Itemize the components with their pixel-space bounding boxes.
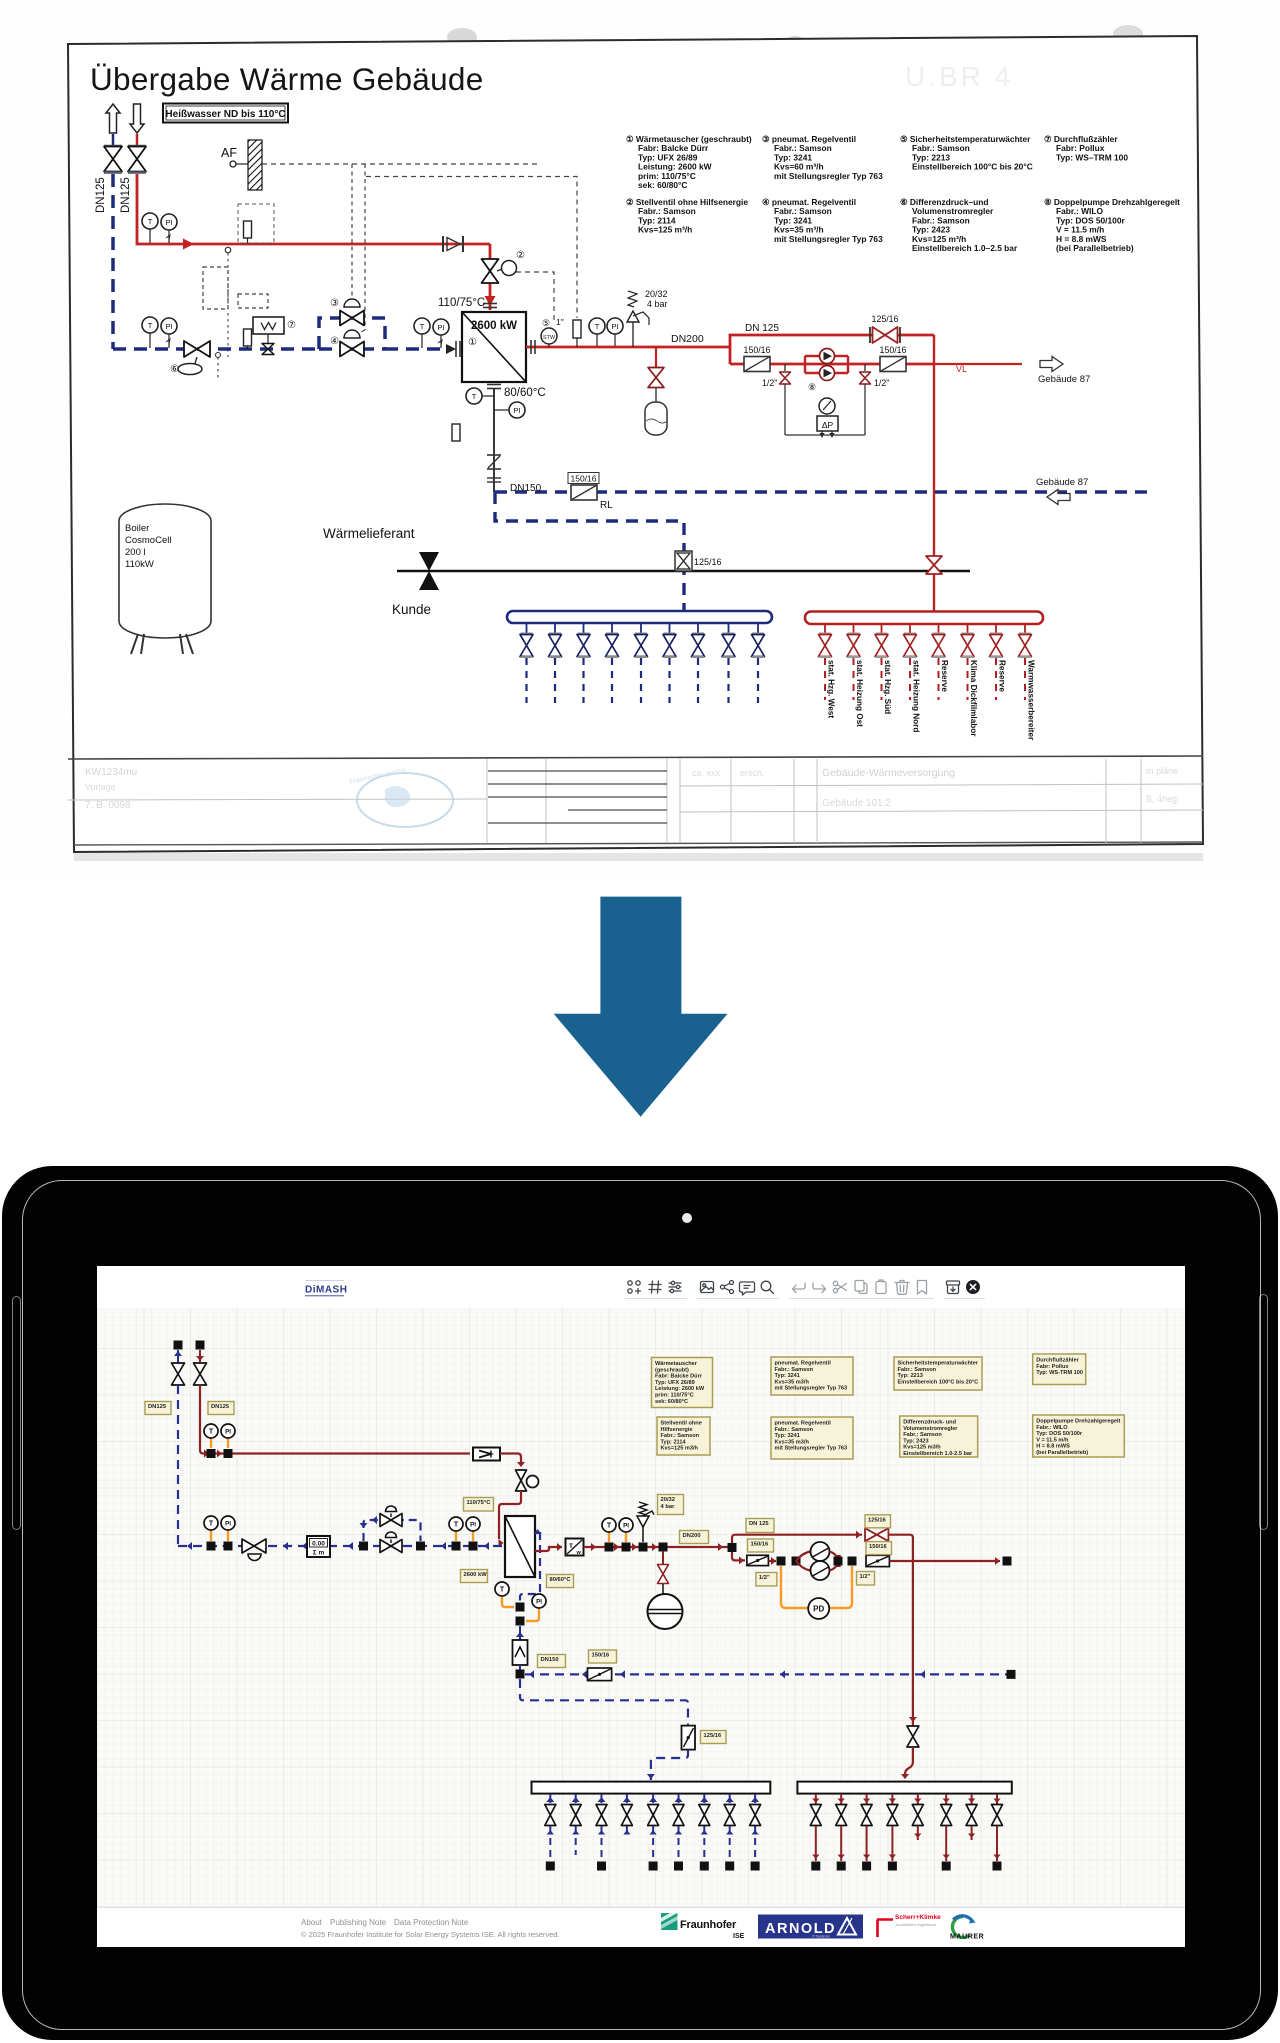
svg-text:DN 125: DN 125 [745, 323, 779, 334]
svg-text:mit Stellungsregler Typ 763: mit Stellungsregler Typ 763 [774, 234, 883, 244]
svg-text:1/2": 1/2" [874, 378, 889, 388]
svg-text:Heißwasser ND bis 110°C: Heißwasser ND bis 110°C [165, 109, 285, 120]
svg-text:Fabr.: Samson: Fabr.: Samson [775, 1427, 814, 1433]
svg-text:Gebäude-Wärmeversorgung: Gebäude-Wärmeversorgung [822, 767, 955, 779]
svg-text:125/16: 125/16 [694, 557, 722, 567]
svg-text:ISE: ISE [733, 1933, 745, 1940]
svg-text:Kvs=125 m³/h: Kvs=125 m³/h [638, 225, 692, 235]
svg-text:Reserve: Reserve [940, 660, 949, 692]
svg-text:AF: AF [221, 146, 237, 160]
svg-text:Publishing Note: Publishing Note [330, 1918, 387, 1927]
svg-text:7. B. 0098: 7. B. 0098 [85, 800, 131, 811]
svg-text:⑦: ⑦ [287, 320, 296, 331]
svg-text:(bei Parallelbetrieb): (bei Parallelbetrieb) [1036, 1450, 1088, 1456]
svg-text:KW1234mu: KW1234mu [85, 767, 137, 778]
svg-text:Einstellbereich 100°C bis 20°C: Einstellbereich 100°C bis 20°C [912, 162, 1033, 172]
svg-text:Fabr.: Samson: Fabr.: Samson [898, 1367, 937, 1373]
svg-text:Hilfsenergie: Hilfsenergie [661, 1427, 693, 1433]
svg-text:110/75°C: 110/75°C [438, 297, 485, 309]
svg-text:4 bar: 4 bar [661, 1504, 676, 1510]
svg-text:PI: PI [437, 323, 444, 332]
svg-text:Scherr+Klimke: Scherr+Klimke [895, 1914, 941, 1921]
svg-text:RL: RL [600, 500, 613, 511]
svg-text:110kW: 110kW [125, 559, 154, 570]
svg-text:0.00: 0.00 [312, 1541, 325, 1548]
svg-text:150/16: 150/16 [744, 345, 771, 355]
svg-text:DN200: DN200 [683, 1533, 701, 1539]
svg-text:Typ: 3241: Typ: 3241 [775, 1433, 800, 1439]
svg-text:1": 1" [556, 317, 564, 327]
svg-text:Gebäude 87: Gebäude 87 [1036, 477, 1088, 488]
svg-text:④: ④ [330, 336, 339, 347]
svg-text:mit Stellungsregler Typ 763: mit Stellungsregler Typ 763 [774, 171, 883, 181]
svg-text:ersch.: ersch. [740, 768, 765, 778]
svg-text:PI: PI [611, 322, 618, 331]
svg-text:Leistung: 2600 kW: Leistung: 2600 kW [655, 1386, 705, 1392]
svg-text:Fabr.: Samson: Fabr.: Samson [775, 1367, 814, 1373]
svg-text:Σ m: Σ m [313, 1550, 325, 1557]
svg-text:DN125: DN125 [120, 177, 132, 213]
svg-text:80/60°C: 80/60°C [550, 1577, 572, 1583]
svg-text:150/16: 150/16 [880, 345, 907, 355]
svg-text:U.BR 4: U.BR 4 [905, 61, 1013, 92]
svg-text:Klima Dickfilmlabor: Klima Dickfilmlabor [969, 660, 978, 737]
svg-text:Fraunhofer: Fraunhofer [680, 1919, 737, 1931]
svg-text:Typ: WS–TRM 100: Typ: WS–TRM 100 [1056, 152, 1128, 162]
svg-text:MAURER: MAURER [950, 1934, 984, 1941]
svg-text:150/16: 150/16 [869, 1544, 888, 1550]
svg-text:Typ: UFX 26/89: Typ: UFX 26/89 [655, 1380, 695, 1386]
svg-text:Typ: 2213: Typ: 2213 [898, 1373, 923, 1379]
svg-text:ca. xxx: ca. xxx [692, 768, 721, 778]
svg-text:stat. Hzg. Süd: stat. Hzg. Süd [883, 660, 892, 714]
svg-text:T: T [148, 217, 153, 226]
svg-text:DN150: DN150 [510, 483, 542, 494]
svg-text:PI: PI [470, 1522, 476, 1529]
svg-text:T: T [472, 392, 477, 401]
svg-text:T: T [607, 1523, 612, 1530]
svg-text:Warmwasserbereiter: Warmwasserbereiter [1027, 660, 1036, 741]
svg-text:Kvs=35 m3/h: Kvs=35 m3/h [775, 1379, 810, 1385]
svg-text:(bei Parallelbetrieb): (bei Parallelbetrieb) [1056, 243, 1134, 253]
svg-text:Wärmelieferant: Wärmelieferant [323, 526, 415, 541]
svg-text:Typ: DOS 50/100r: Typ: DOS 50/100r [1036, 1431, 1083, 1437]
svg-text:PD: PD [813, 1605, 824, 1614]
svg-text:⑧: ⑧ [808, 382, 816, 392]
svg-text:sek: 60/80°C: sek: 60/80°C [638, 180, 687, 190]
svg-text:2600 kW: 2600 kW [471, 320, 517, 332]
svg-text:Kvs=125 m3/h: Kvs=125 m3/h [661, 1446, 699, 1452]
svg-text:T: T [209, 1521, 214, 1528]
svg-text:T: T [454, 1522, 459, 1529]
svg-text:150/16: 150/16 [751, 1542, 770, 1548]
svg-text:Gebäude 87: Gebäude 87 [1038, 374, 1090, 385]
svg-text:pneumat. Regelventil: pneumat. Regelventil [775, 1361, 832, 1367]
svg-text:20/32: 20/32 [645, 289, 668, 299]
svg-text:1/2": 1/2" [762, 378, 777, 388]
svg-text:Volumenstromregler: Volumenstromregler [903, 1426, 958, 1432]
svg-text:③: ③ [330, 298, 339, 309]
svg-text:Typ: 3241: Typ: 3241 [775, 1373, 800, 1379]
svg-text:STW: STW [543, 335, 556, 341]
svg-text:Architekten Ingenieure: Architekten Ingenieure [896, 1922, 937, 1927]
svg-text:mit Stellungsregler Typ 763: mit Stellungsregler Typ 763 [775, 1386, 848, 1392]
svg-text:200 l: 200 l [125, 547, 146, 558]
svg-text:1/2": 1/2" [860, 1574, 871, 1580]
svg-text:m pläne: m pläne [1146, 766, 1178, 776]
svg-text:stat. Heizung Ost: stat. Heizung Ost [855, 660, 864, 727]
svg-text:Boiler: Boiler [125, 523, 149, 534]
svg-text:Fabr: Balcke Dürr: Fabr: Balcke Dürr [655, 1374, 703, 1380]
svg-text:Differenzdruck- und: Differenzdruck- und [903, 1420, 956, 1426]
svg-text:②: ② [516, 250, 525, 261]
svg-text:H = 8.8 mWS: H = 8.8 mWS [1036, 1444, 1070, 1450]
svg-text:T: T [500, 1587, 505, 1594]
svg-text:DN 125: DN 125 [749, 1521, 769, 1527]
svg-text:T: T [148, 321, 153, 330]
svg-text:Einstellbereich 1.0–2.5 bar: Einstellbereich 1.0–2.5 bar [912, 243, 1018, 253]
svg-text:About: About [301, 1918, 323, 1927]
svg-text:DN125: DN125 [95, 177, 107, 213]
svg-text:①: ① [468, 337, 477, 348]
svg-text:pneumat. Regelventil: pneumat. Regelventil [775, 1421, 832, 1427]
svg-text:4 bar: 4 bar [647, 299, 668, 309]
svg-text:125/16: 125/16 [868, 1517, 887, 1523]
svg-text:V = 11.5 m/h: V = 11.5 m/h [1036, 1437, 1069, 1443]
svg-text:Fabr.: Samson: Fabr.: Samson [661, 1433, 700, 1439]
svg-text:2600 kW: 2600 kW [464, 1572, 488, 1578]
svg-text:DN125: DN125 [148, 1404, 167, 1410]
svg-text:⑥: ⑥ [170, 364, 179, 375]
svg-text:ΔP: ΔP [822, 420, 834, 430]
svg-text:Kvs=125 m3/h: Kvs=125 m3/h [903, 1445, 941, 1451]
svg-text:Sicherheitstemperaturwächter: Sicherheitstemperaturwächter [898, 1361, 979, 1367]
svg-text:1/2": 1/2" [759, 1575, 770, 1581]
svg-text:150/16: 150/16 [592, 1653, 611, 1659]
svg-text:Typ: WS-TRM 100: Typ: WS-TRM 100 [1036, 1370, 1083, 1376]
svg-text:Kvs=35 m3/h: Kvs=35 m3/h [775, 1439, 810, 1445]
svg-text:20/32: 20/32 [661, 1497, 676, 1503]
svg-text:T: T [420, 322, 425, 331]
svg-text:Vorlage: Vorlage [85, 782, 116, 792]
svg-text:Einstellbereich 1.0-2.5 bar: Einstellbereich 1.0-2.5 bar [903, 1451, 973, 1457]
svg-text:DN150: DN150 [541, 1657, 559, 1663]
svg-text:DN125: DN125 [211, 1404, 230, 1410]
svg-text:© 2025 Fraunhofer Institute fo: © 2025 Fraunhofer Institute for Solar En… [301, 1930, 560, 1939]
svg-text:stat. Heizung Nord: stat. Heizung Nord [912, 660, 921, 732]
svg-text:Data Protection Note: Data Protection Note [394, 1918, 469, 1927]
svg-text:PI: PI [225, 1429, 231, 1436]
svg-text:T: T [209, 1429, 214, 1436]
svg-text:Reserve: Reserve [998, 660, 1007, 692]
svg-text:PI: PI [513, 406, 520, 415]
svg-text:110/75°C: 110/75°C [467, 1500, 492, 1506]
svg-text:Wärmetauscher: Wärmetauscher [655, 1361, 698, 1367]
svg-text:PI: PI [623, 1523, 629, 1530]
svg-text:PI: PI [165, 218, 172, 227]
svg-text:125/16: 125/16 [872, 314, 899, 324]
svg-text:Doppelpumpe Drehzahlgeregelt: Doppelpumpe Drehzahlgeregelt [1036, 1419, 1120, 1425]
svg-text:T: T [569, 1543, 573, 1550]
svg-text:VL: VL [956, 364, 967, 374]
svg-text:sek: 60/80°C: sek: 60/80°C [655, 1399, 688, 1405]
svg-text:T: T [595, 322, 600, 331]
svg-text:CosmoCell: CosmoCell [125, 535, 171, 546]
svg-text:Gebäude 101.2: Gebäude 101.2 [822, 798, 891, 809]
svg-text:PI: PI [165, 322, 172, 331]
svg-text:stat. Hzg. West: stat. Hzg. West [827, 660, 836, 718]
svg-text:Typ: 2423: Typ: 2423 [903, 1438, 928, 1444]
svg-text:⑤: ⑤ [542, 318, 550, 328]
svg-text:mit Stellungsregler Typ 763: mit Stellungsregler Typ 763 [775, 1446, 848, 1452]
svg-text:DiMASH: DiMASH [305, 1285, 347, 1296]
svg-text:B, 4heg: B, 4heg [1146, 794, 1177, 804]
svg-text:150/16: 150/16 [571, 474, 597, 484]
svg-text:w: w [576, 1550, 582, 1556]
svg-text:(geschraubt): (geschraubt) [655, 1367, 689, 1373]
svg-text:Fabr.: Samson: Fabr.: Samson [903, 1432, 942, 1438]
svg-text:Kunde: Kunde [392, 602, 431, 617]
svg-text:Stellventil ohne: Stellventil ohne [661, 1421, 702, 1427]
svg-text:Übergabe Wärme Gebäude: Übergabe Wärme Gebäude [90, 61, 484, 97]
svg-text:PI: PI [225, 1521, 231, 1528]
svg-text:PI: PI [536, 1599, 542, 1606]
svg-text:DN200: DN200 [671, 333, 704, 345]
svg-text:Fabr: Pollux: Fabr: Pollux [1036, 1364, 1069, 1370]
svg-text:Durchflußzähler: Durchflußzähler [1036, 1358, 1079, 1364]
svg-text:Fabr.: WILO: Fabr.: WILO [1036, 1425, 1068, 1431]
svg-text:Einstellbereich 100°C bis 20°C: Einstellbereich 100°C bis 20°C [898, 1379, 979, 1385]
svg-text:prim: 110/75°C: prim: 110/75°C [655, 1393, 694, 1399]
svg-text:Typ: 2114: Typ: 2114 [661, 1439, 687, 1445]
svg-text:125/16: 125/16 [704, 1733, 723, 1739]
svg-text:80/60°C: 80/60°C [504, 387, 546, 399]
svg-text:IT Systems: IT Systems [812, 1935, 830, 1939]
